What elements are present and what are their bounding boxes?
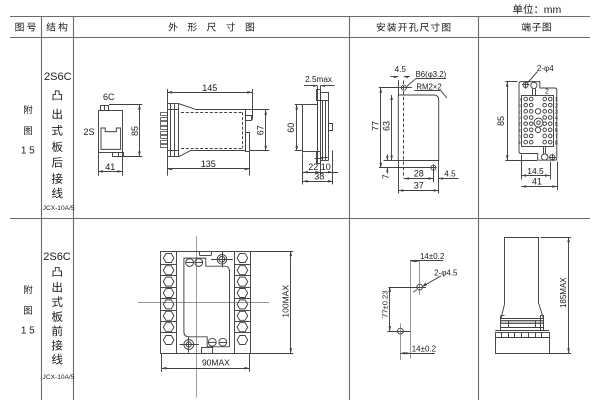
- svg-text:2: 2: [519, 103, 522, 108]
- svg-text:8: 8: [555, 140, 558, 146]
- svg-text:5: 5: [555, 122, 558, 128]
- svg-text:14±0.2: 14±0.2: [412, 344, 437, 353]
- svg-text:1 5: 1 5: [21, 325, 35, 336]
- svg-text:3: 3: [555, 110, 558, 116]
- svg-text:4.5: 4.5: [444, 170, 456, 179]
- svg-text:3: 3: [519, 109, 522, 114]
- svg-text:RM2×2: RM2×2: [416, 82, 441, 91]
- svg-text:2-φ4.5: 2-φ4.5: [434, 268, 458, 277]
- svg-text:1: 1: [519, 97, 522, 102]
- svg-text:7: 7: [381, 174, 391, 179]
- svg-text:135: 135: [201, 159, 216, 169]
- svg-text:90MAX: 90MAX: [202, 357, 230, 367]
- svg-text:28: 28: [414, 169, 424, 179]
- svg-text:2.5max: 2.5max: [305, 75, 332, 84]
- svg-text:63: 63: [382, 121, 392, 131]
- svg-text:JCX-10A/5: JCX-10A/5: [43, 374, 75, 381]
- svg-text:2S6C: 2S6C: [43, 251, 71, 263]
- svg-text:37: 37: [414, 181, 424, 191]
- svg-text:60: 60: [286, 123, 296, 133]
- svg-text:85: 85: [496, 116, 506, 126]
- svg-text:1: 1: [555, 97, 558, 103]
- svg-text:14.5: 14.5: [527, 166, 544, 176]
- svg-text:6: 6: [555, 128, 558, 134]
- svg-text:2: 2: [545, 89, 549, 96]
- svg-text:145: 145: [202, 83, 217, 93]
- svg-text:6: 6: [519, 128, 522, 133]
- svg-text:4: 4: [555, 116, 558, 122]
- svg-text:38: 38: [314, 171, 324, 181]
- svg-text:2S6C: 2S6C: [44, 71, 72, 83]
- svg-text:67: 67: [256, 125, 266, 135]
- svg-text:2S: 2S: [83, 127, 94, 137]
- svg-text:8: 8: [519, 140, 522, 145]
- svg-text:77±0.23: 77±0.23: [380, 290, 389, 317]
- svg-text:7: 7: [519, 134, 522, 139]
- svg-text:5: 5: [519, 122, 522, 127]
- svg-text:6C: 6C: [103, 92, 115, 102]
- svg-text:77: 77: [371, 121, 381, 131]
- svg-text:2-φ4: 2-φ4: [537, 64, 554, 73]
- svg-text:1 5: 1 5: [21, 145, 35, 156]
- svg-text:4.5: 4.5: [395, 65, 407, 74]
- svg-text:4: 4: [519, 115, 522, 120]
- svg-text:2: 2: [555, 103, 558, 109]
- svg-text:185MAX: 185MAX: [559, 277, 568, 308]
- svg-text:85: 85: [130, 126, 140, 136]
- svg-text:B6(φ3.2): B6(φ3.2): [416, 70, 447, 79]
- svg-text:100MAX: 100MAX: [280, 285, 290, 318]
- svg-text:41: 41: [532, 177, 542, 187]
- svg-text:41: 41: [105, 162, 115, 172]
- svg-text:JCX-10A/5: JCX-10A/5: [43, 205, 75, 212]
- svg-text:7: 7: [555, 134, 558, 140]
- svg-text:14±0.2: 14±0.2: [420, 252, 445, 261]
- svg-text:mm: mm: [544, 4, 562, 16]
